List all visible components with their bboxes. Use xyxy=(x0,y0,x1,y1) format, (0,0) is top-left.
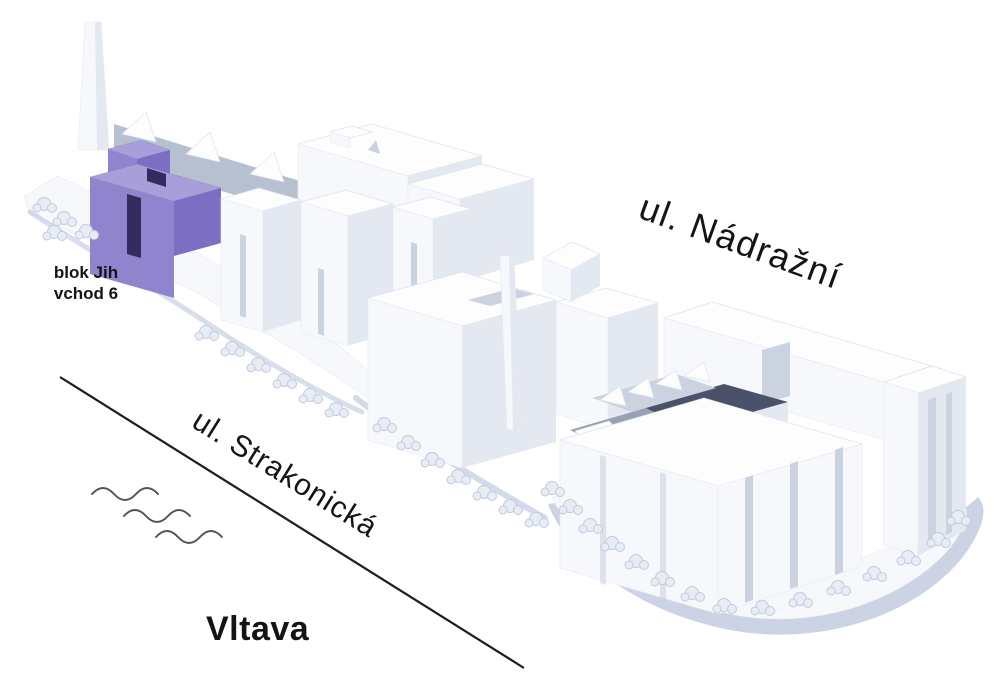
river-label: Vltava xyxy=(206,610,309,649)
site-plan-view: blok Jih vchod 6 ul. Nádražní ul. Strako… xyxy=(0,0,1000,695)
facade-fin xyxy=(745,475,753,603)
recess-slot xyxy=(127,194,141,258)
block-label: blok Jih vchod 6 xyxy=(34,262,138,304)
window-slit xyxy=(318,268,324,336)
side-face xyxy=(263,200,301,332)
facade-fin xyxy=(928,397,936,543)
facade-fin xyxy=(790,461,798,589)
wave-line xyxy=(92,488,158,500)
corner-bar-wall xyxy=(884,382,918,556)
block-label-line2: vchod 6 xyxy=(34,283,138,304)
wall-face xyxy=(301,202,348,346)
wall-face xyxy=(556,302,608,430)
facade-fin xyxy=(600,455,606,585)
corner-bar-side xyxy=(918,377,966,556)
facade-fin xyxy=(835,447,843,575)
passage-gap xyxy=(762,342,790,404)
chimney-shade xyxy=(95,22,109,150)
wave-line xyxy=(156,531,222,543)
water-waves-icon xyxy=(92,488,222,543)
facade-fin xyxy=(946,392,952,535)
wave-line xyxy=(124,510,190,522)
city-model-canvas xyxy=(0,0,1000,695)
window-slit xyxy=(240,234,246,318)
block-label-line1: blok Jih xyxy=(34,262,138,283)
